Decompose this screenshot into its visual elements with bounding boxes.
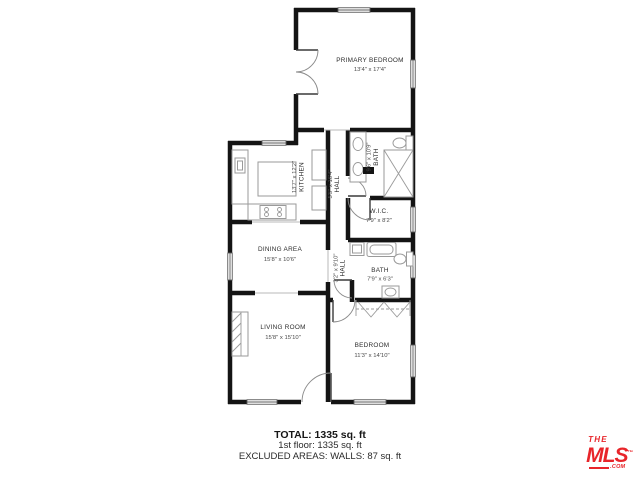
- room-dims-bedroom: 11'3" x 14'10": [354, 353, 389, 359]
- closet-sides: [356, 300, 410, 316]
- doors: [296, 50, 370, 402]
- toilet: [393, 138, 406, 148]
- excluded-area-text: EXCLUDED AREAS: WALLS: 87 sq. ft: [0, 452, 640, 463]
- mls-logo-com: .COM: [610, 465, 625, 471]
- floor-plan-page: PRIMARY BEDROOM 13'4" x 17'4" KITCHEN 13…: [0, 0, 640, 480]
- bathtub-inner: [370, 245, 393, 254]
- kitchen-counter-right-lower: [312, 186, 326, 210]
- toilet-tank: [406, 136, 413, 150]
- window: [262, 141, 286, 146]
- room-dims-hall-upper: 5'5" x 16'4": [328, 169, 334, 198]
- kitchen-counter-right-upper: [312, 150, 326, 180]
- door-bedroom: [333, 300, 355, 322]
- kitchen-sink-basin: [238, 161, 243, 170]
- room-dims-primary-bedroom: 13'4" x 17'4": [354, 67, 386, 73]
- room-label-wic: W.I.C.: [370, 208, 389, 215]
- toilet-tank: [407, 252, 414, 266]
- first-floor-area-text: 1st floor: 1335 sq. ft: [0, 441, 640, 452]
- room-label-kitchen: KITCHEN: [299, 162, 306, 192]
- room-dims-kitchen: 13'7" x 12'2": [292, 161, 298, 193]
- window: [247, 400, 277, 405]
- floor-plan-drawing: PRIMARY BEDROOM 13'4" x 17'4" KITCHEN 13…: [0, 0, 640, 480]
- room-label-hall-lower: HALL: [340, 259, 347, 276]
- vanity: [350, 132, 366, 182]
- room-dims-primary-bath: 9'6" x 10'9": [367, 142, 373, 171]
- window: [411, 60, 416, 88]
- room-label-bath: BATH: [371, 267, 389, 274]
- door-wic: [348, 198, 370, 220]
- room-label-bedroom: BEDROOM: [355, 342, 390, 349]
- window: [411, 345, 416, 377]
- room-label-hall-upper: HALL: [334, 175, 341, 192]
- room-label-living-room: LIVING ROOM: [260, 324, 305, 331]
- room-dims-hall-lower: 3'2" x 9'10": [334, 253, 340, 282]
- mls-logo-the: THE: [586, 436, 633, 444]
- window: [338, 8, 370, 13]
- window: [228, 253, 233, 280]
- mls-logo: THE MLS™ .COM: [586, 436, 633, 471]
- toilet: [394, 254, 406, 264]
- mls-logo-mls: MLS™: [586, 445, 633, 466]
- room-label-dining-area: DINING AREA: [258, 246, 302, 253]
- room-dims-bath: 7'9" x 6'3": [367, 277, 393, 283]
- stove: [260, 206, 286, 219]
- area-summary: TOTAL: 1335 sq. ft 1st floor: 1335 sq. f…: [0, 429, 640, 462]
- closet-bifold-doors: [358, 302, 410, 317]
- room-dims-living-room: 15'8" x 15'10": [265, 335, 301, 341]
- room-label-primary-bedroom: PRIMARY BEDROOM: [336, 57, 403, 64]
- window: [354, 400, 386, 405]
- kitchen-island: [258, 162, 296, 196]
- window: [411, 207, 416, 232]
- mls-logo-bar: [589, 467, 609, 470]
- double-door: [296, 50, 318, 94]
- trademark-symbol: ™: [628, 450, 634, 456]
- room-label-primary-bath: BATH: [373, 148, 380, 166]
- room-dims-wic: 7'9" x 8'2": [366, 218, 392, 224]
- room-dims-dining-area: 15'8" x 10'6": [264, 257, 296, 263]
- linen-closet-inner: [353, 245, 362, 253]
- fixtures: [232, 132, 413, 356]
